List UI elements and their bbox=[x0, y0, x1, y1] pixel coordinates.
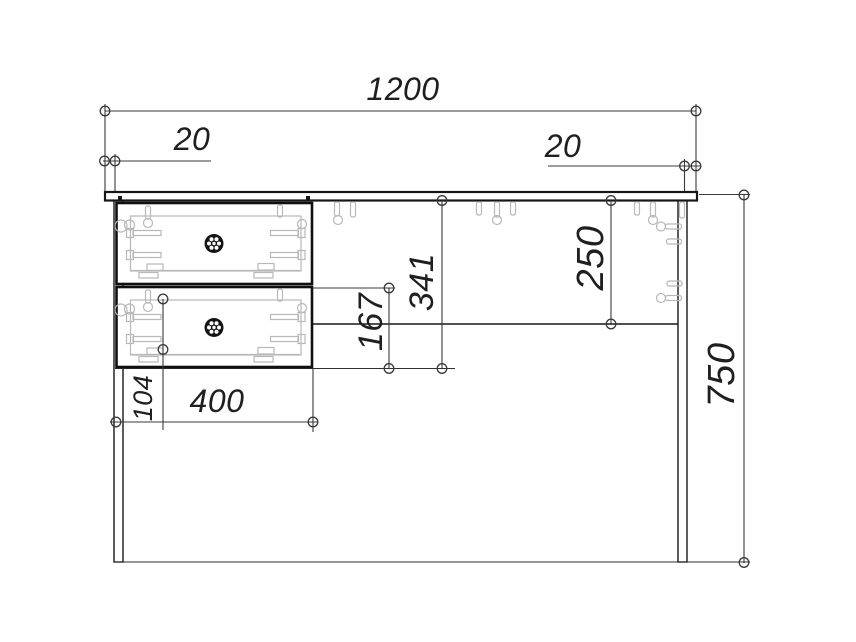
cam-connector-mark bbox=[306, 196, 310, 201]
dim-label-drawer-bay-height: 341 bbox=[403, 253, 441, 311]
fastener-icons bbox=[334, 202, 685, 303]
drawer-unit bbox=[115, 203, 312, 367]
dim-label-total-width: 1200 bbox=[366, 71, 439, 107]
dimension-left-overhang: 20 bbox=[100, 121, 211, 191]
dim-label-drawer-hole-pitch: 104 bbox=[128, 375, 158, 422]
dim-label-drawer-unit-width: 400 bbox=[190, 383, 245, 419]
dim-label-lower-section-height: 167 bbox=[352, 292, 390, 351]
dim-label-back-panel-height: 250 bbox=[570, 226, 612, 292]
cam-connector-mark bbox=[118, 196, 122, 201]
right-side-panel bbox=[678, 201, 687, 563]
drawing-page: 1200 20 20 750 341 167 2 bbox=[0, 0, 856, 642]
dimension-right-overhang: 20 bbox=[544, 128, 701, 191]
dimension-lower-section-height: 167 bbox=[313, 283, 395, 373]
dimension-back-panel-height: 250 bbox=[570, 196, 616, 329]
dimension-total-height: 750 bbox=[699, 190, 750, 567]
dim-label-total-height: 750 bbox=[701, 343, 743, 408]
dimension-drawer-bay-height: 341 bbox=[403, 196, 447, 374]
dim-label-right-overhang: 20 bbox=[544, 128, 582, 164]
technical-drawing: 1200 20 20 750 341 167 2 bbox=[0, 0, 856, 642]
dim-label-left-overhang: 20 bbox=[173, 121, 211, 157]
